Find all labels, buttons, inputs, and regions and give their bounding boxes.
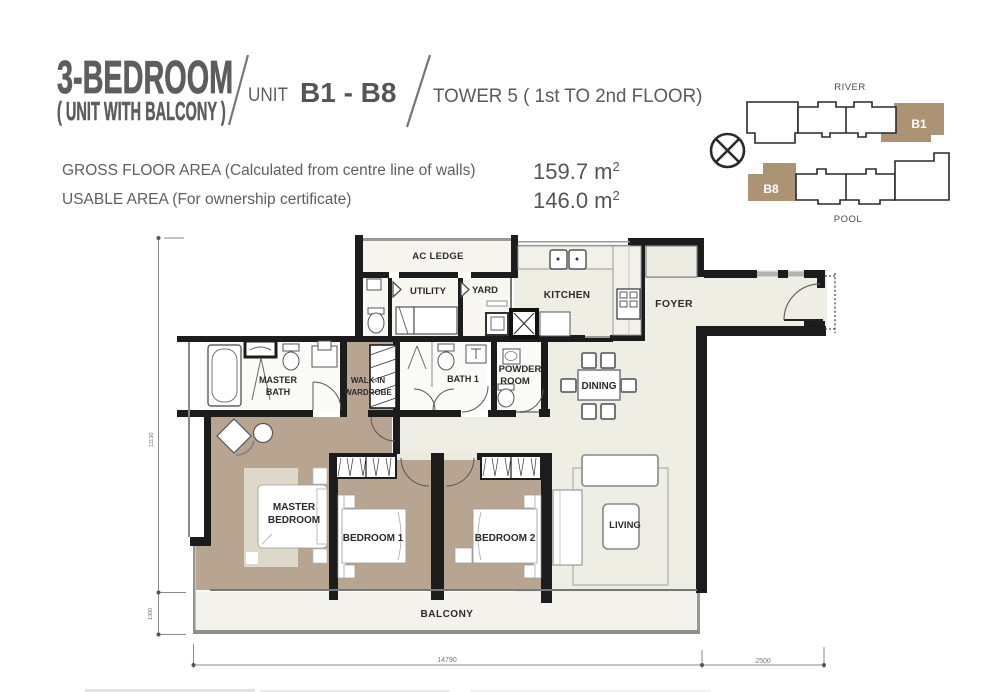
svg-text:YARD: YARD <box>472 285 498 296</box>
svg-text:11130: 11130 <box>149 433 155 447</box>
svg-text:146.0 m2: 146.0 m2 <box>533 188 620 213</box>
svg-text:14790: 14790 <box>437 657 457 664</box>
svg-text:B1 - B8: B1 - B8 <box>300 77 396 108</box>
svg-text:B8: B8 <box>763 182 779 196</box>
svg-text:BEDROOM 2: BEDROOM 2 <box>475 533 536 544</box>
svg-text:WARDROBE: WARDROBE <box>344 388 392 397</box>
svg-text:1300: 1300 <box>148 608 154 620</box>
svg-text:KITCHEN: KITCHEN <box>544 290 591 301</box>
svg-text:MASTER: MASTER <box>273 502 316 513</box>
svg-text:FOYER: FOYER <box>655 298 693 310</box>
svg-text:ROOM: ROOM <box>500 376 530 387</box>
svg-text:2500: 2500 <box>755 658 771 665</box>
svg-text:3-BEDROOM: 3-BEDROOM <box>57 52 233 104</box>
svg-text:BATH 1: BATH 1 <box>447 374 479 384</box>
svg-text:POOL: POOL <box>834 214 862 225</box>
svg-text:159.7 m2: 159.7 m2 <box>533 159 620 184</box>
svg-text:TOWER 5 ( 1st TO 2nd FLOOR): TOWER 5 ( 1st TO 2nd FLOOR) <box>433 86 702 107</box>
svg-text:( UNIT WITH BALCONY ): ( UNIT WITH BALCONY ) <box>57 98 226 126</box>
svg-text:USABLE AREA (For ownership ce: USABLE AREA (For ownership certificate) <box>62 191 351 208</box>
svg-text:POWDER: POWDER <box>499 364 542 375</box>
svg-text:BEDROOM: BEDROOM <box>268 515 320 526</box>
svg-text:AC LEDGE: AC LEDGE <box>412 251 464 262</box>
svg-text:DINING: DINING <box>582 381 617 392</box>
svg-text:BEDROOM 1: BEDROOM 1 <box>343 533 404 544</box>
svg-text:RIVER: RIVER <box>834 82 866 93</box>
svg-text:UNIT: UNIT <box>248 83 288 105</box>
svg-text:LIVING: LIVING <box>609 520 641 531</box>
svg-text:MASTER: MASTER <box>259 375 298 385</box>
svg-text:B1: B1 <box>911 117 927 131</box>
svg-text:UTILITY: UTILITY <box>410 286 447 297</box>
svg-text:WALK-IN: WALK-IN <box>351 376 385 385</box>
svg-text:BATH: BATH <box>266 387 290 397</box>
svg-text:BALCONY: BALCONY <box>421 609 474 620</box>
svg-text:GROSS FLOOR AREA (Calculated: GROSS FLOOR AREA (Calculated from centre… <box>62 162 475 179</box>
